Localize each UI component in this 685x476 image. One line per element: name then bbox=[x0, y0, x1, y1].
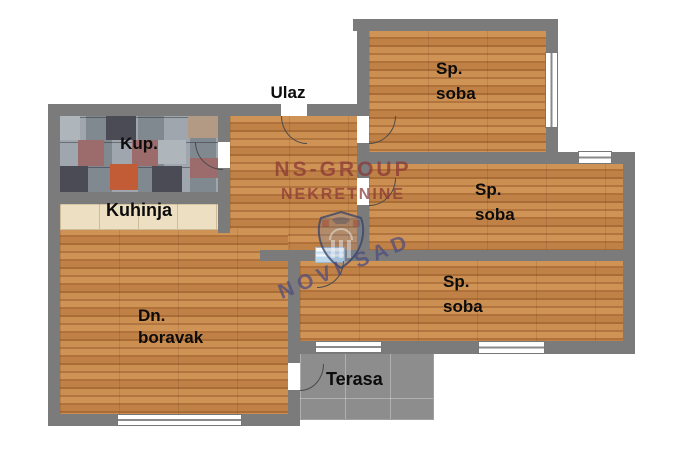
floor-plan: Ulaz Kup. Kuhinja Dn. boravak Sp. soba S… bbox=[0, 0, 685, 476]
wall-left bbox=[48, 104, 60, 426]
terrace-label: Terasa bbox=[326, 368, 383, 390]
living-room-label-line1: Dn. bbox=[138, 305, 203, 327]
living-room-window bbox=[117, 414, 242, 426]
kitchen-label: Kuhinja bbox=[80, 199, 198, 221]
bedroom3-label-line1: Sp. bbox=[443, 269, 483, 294]
watermark-brand-line1: NS-GROUP bbox=[258, 158, 428, 182]
bedroom2-window bbox=[578, 151, 612, 164]
bedroom2-label-line2: soba bbox=[475, 202, 515, 227]
bedroom3-label: Sp. soba bbox=[443, 269, 483, 319]
bedroom3-label-line2: soba bbox=[443, 294, 483, 319]
terrace-window bbox=[315, 341, 382, 353]
living-room-label: Dn. boravak bbox=[138, 305, 203, 349]
wall-bath-hall bbox=[218, 116, 230, 233]
bedroom1-label-line1: Sp. bbox=[436, 56, 476, 81]
wall-bedroom1-left bbox=[357, 19, 369, 116]
terrace-door-opening bbox=[288, 363, 300, 390]
bedroom1-window bbox=[545, 52, 558, 128]
watermark-brand-line2: NEKRETNINE bbox=[258, 186, 428, 204]
bedroom1-label-line2: soba bbox=[436, 81, 476, 106]
wall-bedroom1-top bbox=[353, 19, 558, 31]
bedroom2-label-line1: Sp. bbox=[475, 177, 515, 202]
entrance-door-opening bbox=[281, 104, 307, 116]
living-room-label-line2: boravak bbox=[138, 327, 203, 349]
bedroom1-label: Sp. soba bbox=[436, 56, 476, 106]
bedroom2-label: Sp. soba bbox=[475, 177, 515, 227]
entrance-label: Ulaz bbox=[262, 82, 314, 104]
bathroom-label: Kup. bbox=[104, 133, 174, 155]
bedroom3-window bbox=[478, 341, 545, 354]
bedroom1-door-opening bbox=[357, 116, 369, 143]
wall-top-main bbox=[48, 104, 357, 116]
